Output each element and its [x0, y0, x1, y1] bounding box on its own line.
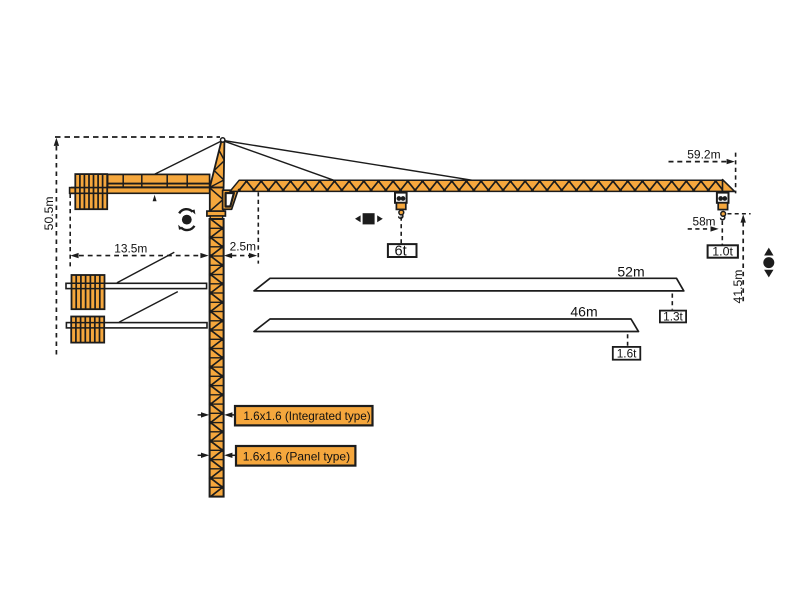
svg-text:50.5m: 50.5m	[42, 196, 56, 230]
svg-text:59.2m: 59.2m	[687, 148, 720, 162]
svg-text:1.6t: 1.6t	[617, 346, 637, 360]
svg-text:1.6x1.6 (Panel type): 1.6x1.6 (Panel type)	[243, 449, 350, 463]
svg-text:2.5m: 2.5m	[230, 239, 257, 253]
svg-text:13.5m: 13.5m	[114, 241, 147, 255]
svg-text:6t: 6t	[395, 243, 407, 259]
svg-text:58m: 58m	[693, 215, 716, 229]
svg-text:52m: 52m	[617, 264, 644, 280]
svg-text:1.3t: 1.3t	[663, 309, 683, 323]
svg-text:1.0t: 1.0t	[712, 245, 733, 259]
svg-text:46m: 46m	[570, 304, 597, 320]
svg-text:41.5m: 41.5m	[731, 270, 745, 304]
svg-text:1.6x1.6 (Integrated type): 1.6x1.6 (Integrated type)	[243, 410, 370, 423]
